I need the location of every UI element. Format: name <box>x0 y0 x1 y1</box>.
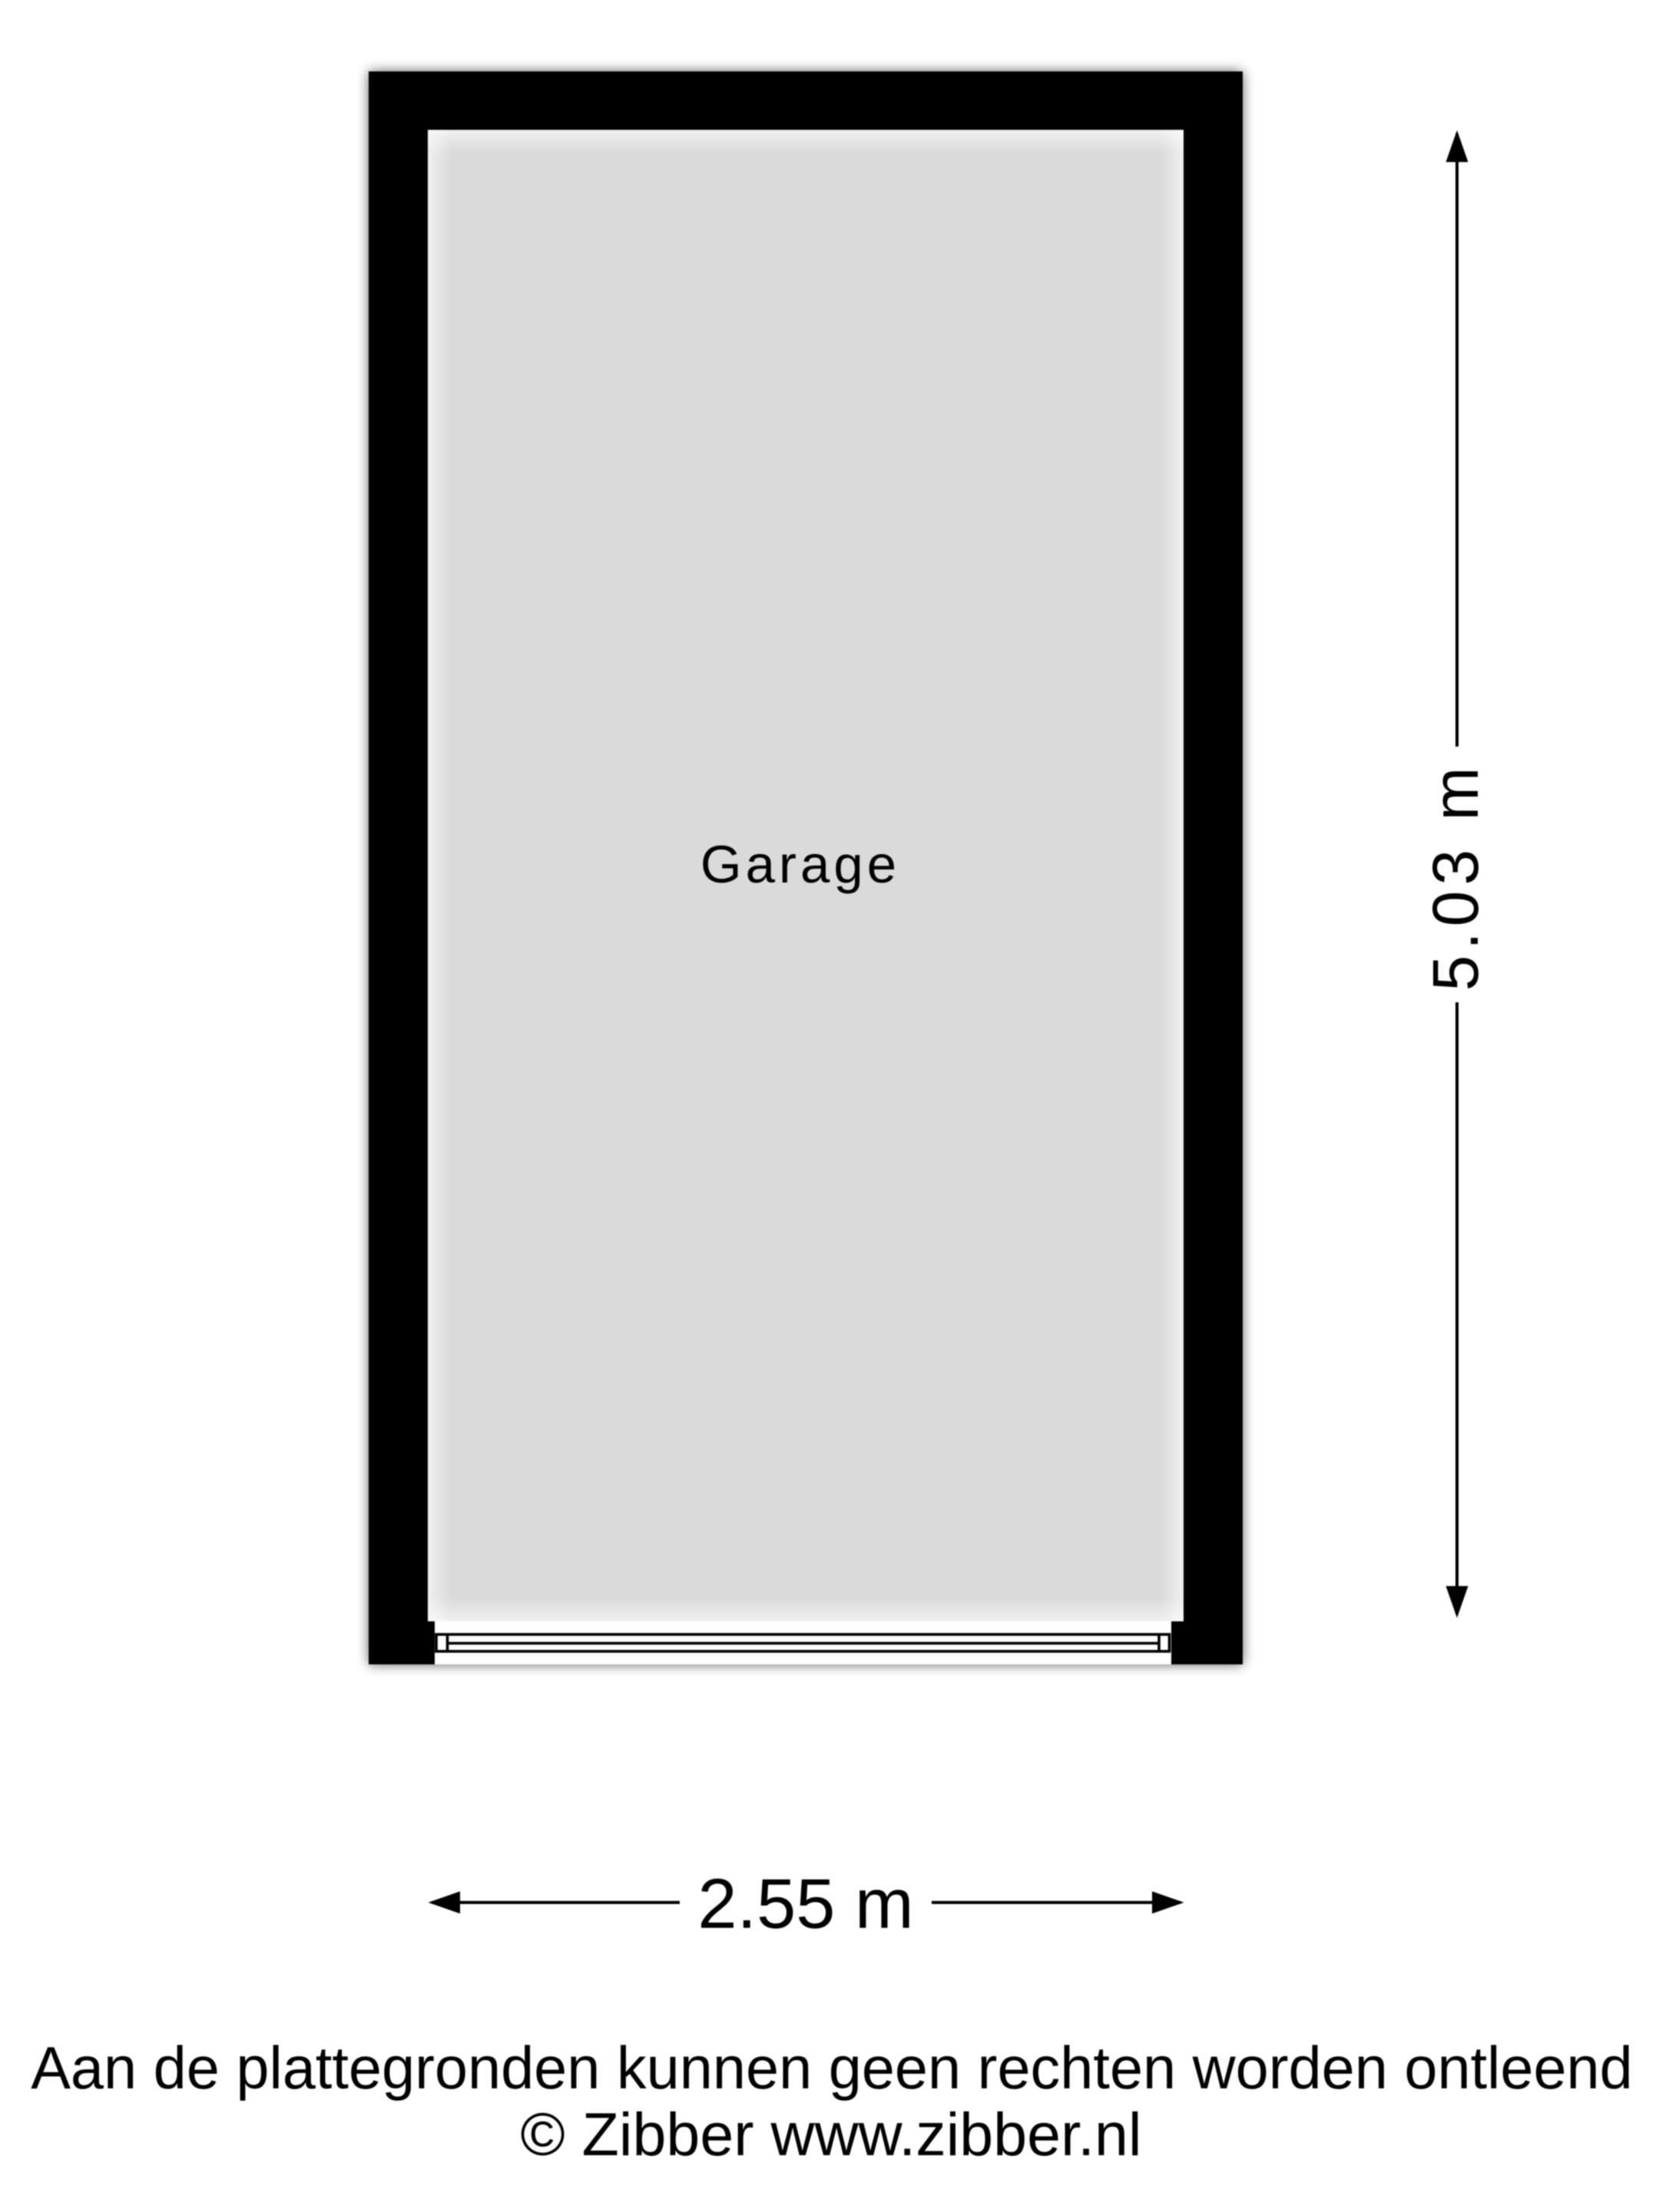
svg-text:5.03 m: 5.03 m <box>1419 762 1492 992</box>
svg-text:© Zibber www.zibber.nl: © Zibber www.zibber.nl <box>520 2100 1141 2168</box>
svg-text:Aan de plattegronden kunnen ge: Aan de plattegronden kunnen geen rechten… <box>31 2035 1633 2101</box>
svg-text:2.55 m: 2.55 m <box>697 1865 913 1943</box>
svg-text:Garage: Garage <box>700 835 900 894</box>
